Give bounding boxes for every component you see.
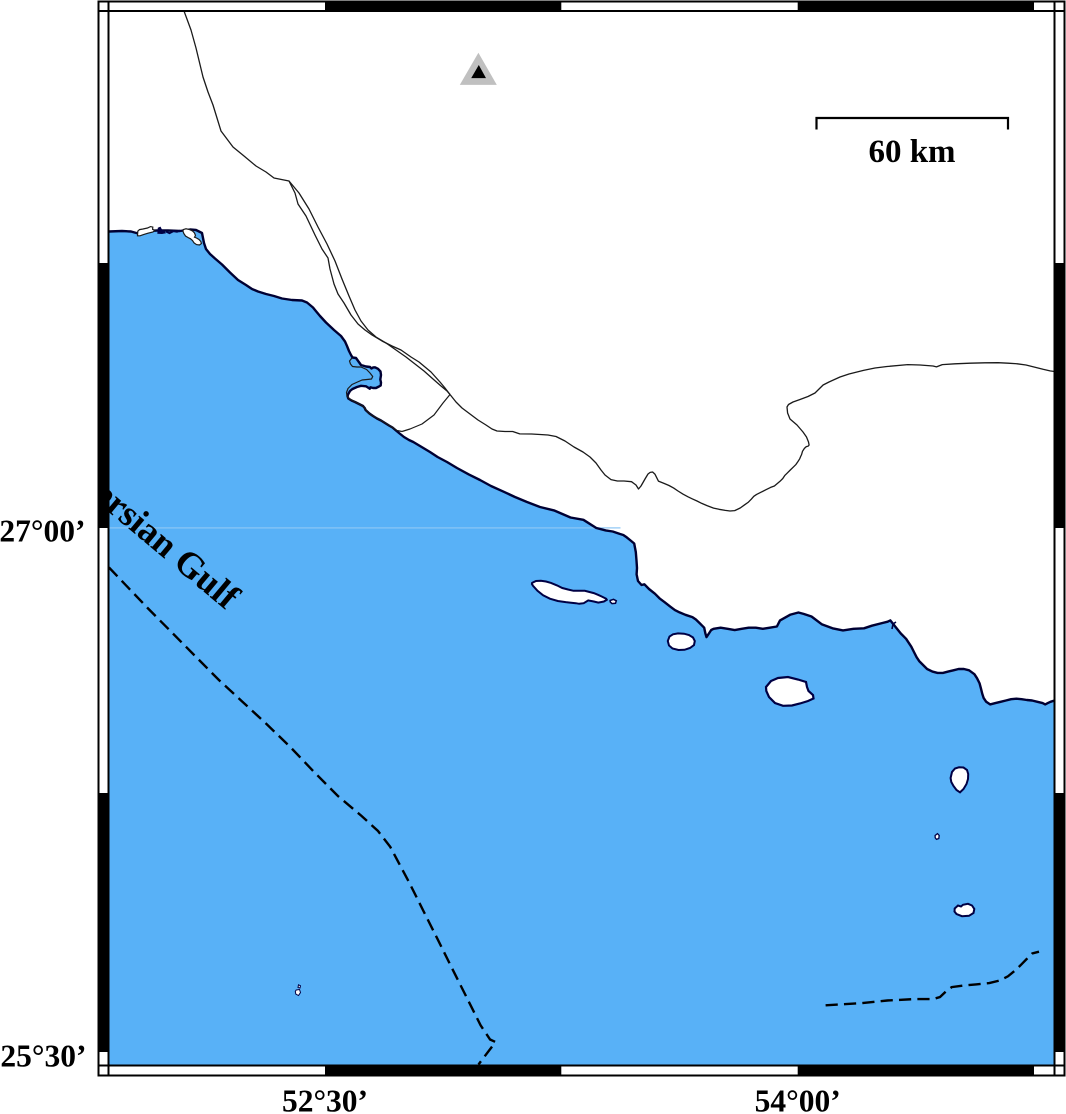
svg-text:54°00’: 54°00’ <box>755 1083 841 1114</box>
svg-text:27°00’: 27°00’ <box>0 514 86 549</box>
svg-text:60 km: 60 km <box>868 134 955 170</box>
svg-text:25°30’: 25°30’ <box>0 1038 86 1073</box>
svg-text:52°30’: 52°30’ <box>282 1083 368 1114</box>
